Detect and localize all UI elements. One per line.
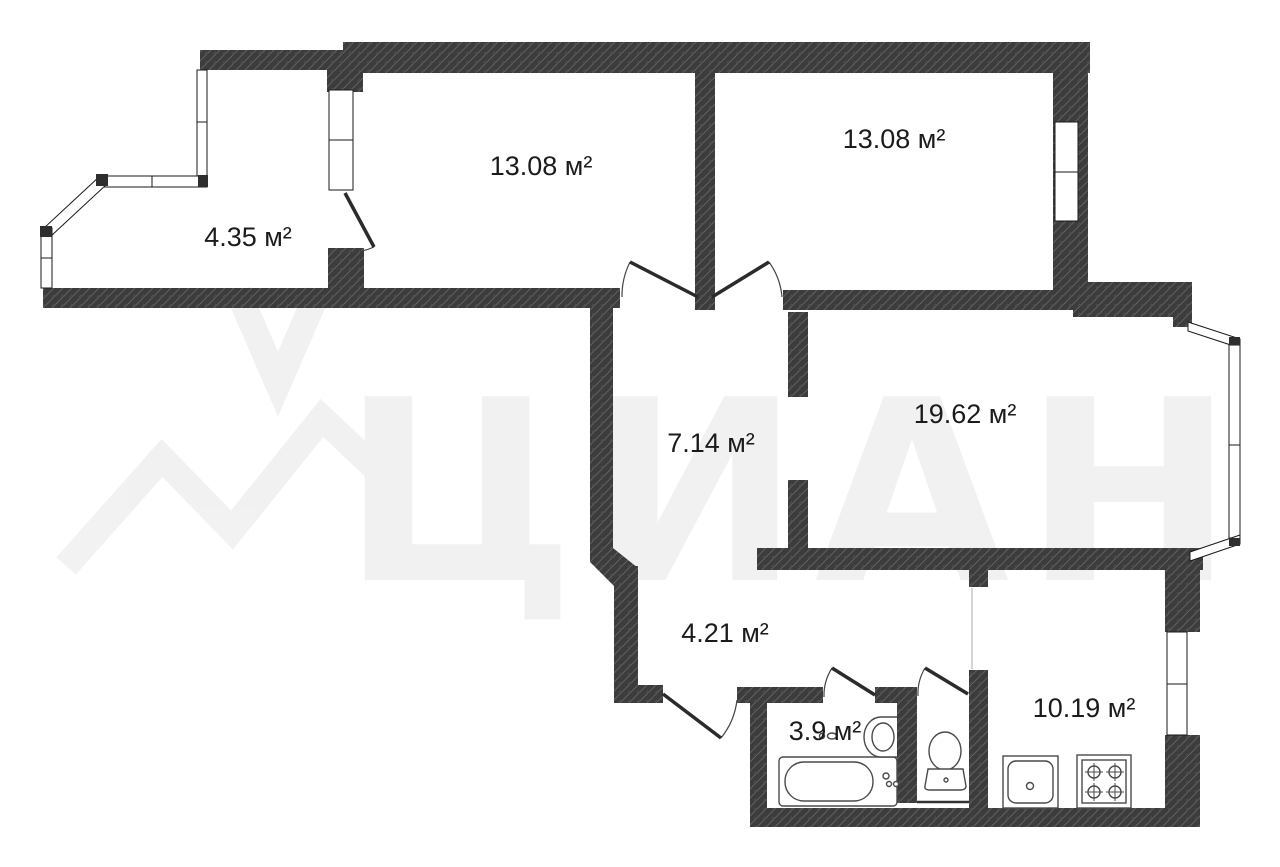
wall-living-top (783, 290, 1073, 310)
wall-balcony-top (200, 50, 345, 70)
wall-kitchen-right-lower (1165, 735, 1200, 827)
wall-corridor-bottom-left (618, 685, 663, 703)
wall-balcony-partition-upper (327, 68, 363, 92)
wall-kitchen-left-stub (969, 568, 988, 587)
floor-plan-drawing: ЦИАН (0, 0, 1280, 867)
room-label-bathroom: 3.9 м² (789, 716, 862, 746)
floor-plan-page: ЦИАН (0, 0, 1280, 867)
room-label-room1: 13.08 м² (490, 151, 593, 181)
wall-bath-wc-top-stub (875, 687, 917, 703)
balcony-window-horizontal (100, 176, 207, 187)
room-label-hallway: 7.14 м² (667, 428, 755, 458)
wall-living-bottom (757, 548, 1203, 570)
wall-outer-top (343, 42, 1090, 73)
wall-bath-wc-divider (897, 703, 917, 803)
room-label-living: 19.62 м² (914, 399, 1017, 429)
wall-living-top-right (1073, 282, 1190, 317)
wall-kitchen-right-upper (1165, 570, 1200, 632)
bay-window-right (1229, 345, 1240, 538)
room-label-room2: 13.08 м² (843, 124, 946, 154)
wall-hallway-left-upper (590, 308, 613, 550)
wall-hallway-right-upper (788, 312, 808, 397)
wall-wc-kitchen (969, 670, 988, 808)
stove-icon (1077, 755, 1131, 808)
kitchen-sink-icon (1003, 756, 1058, 808)
wall-top-section-bottom-left (43, 288, 620, 308)
room-label-kitchen: 10.19 м² (1033, 693, 1136, 723)
wall-rooms-divider (695, 73, 715, 310)
balcony-window-left-vertical (197, 70, 207, 179)
wall-bay-top-stub (1173, 282, 1192, 327)
wall-bathroom-top (737, 687, 823, 703)
wall-hallway-right-lower (788, 480, 808, 568)
room-label-balcony: 4.35 м² (204, 222, 292, 252)
bathtub-icon (779, 757, 899, 806)
room-label-corridor: 4.21 м² (681, 618, 769, 648)
wall-corridor-left (614, 566, 638, 703)
wall-outer-bottom (750, 808, 1200, 827)
